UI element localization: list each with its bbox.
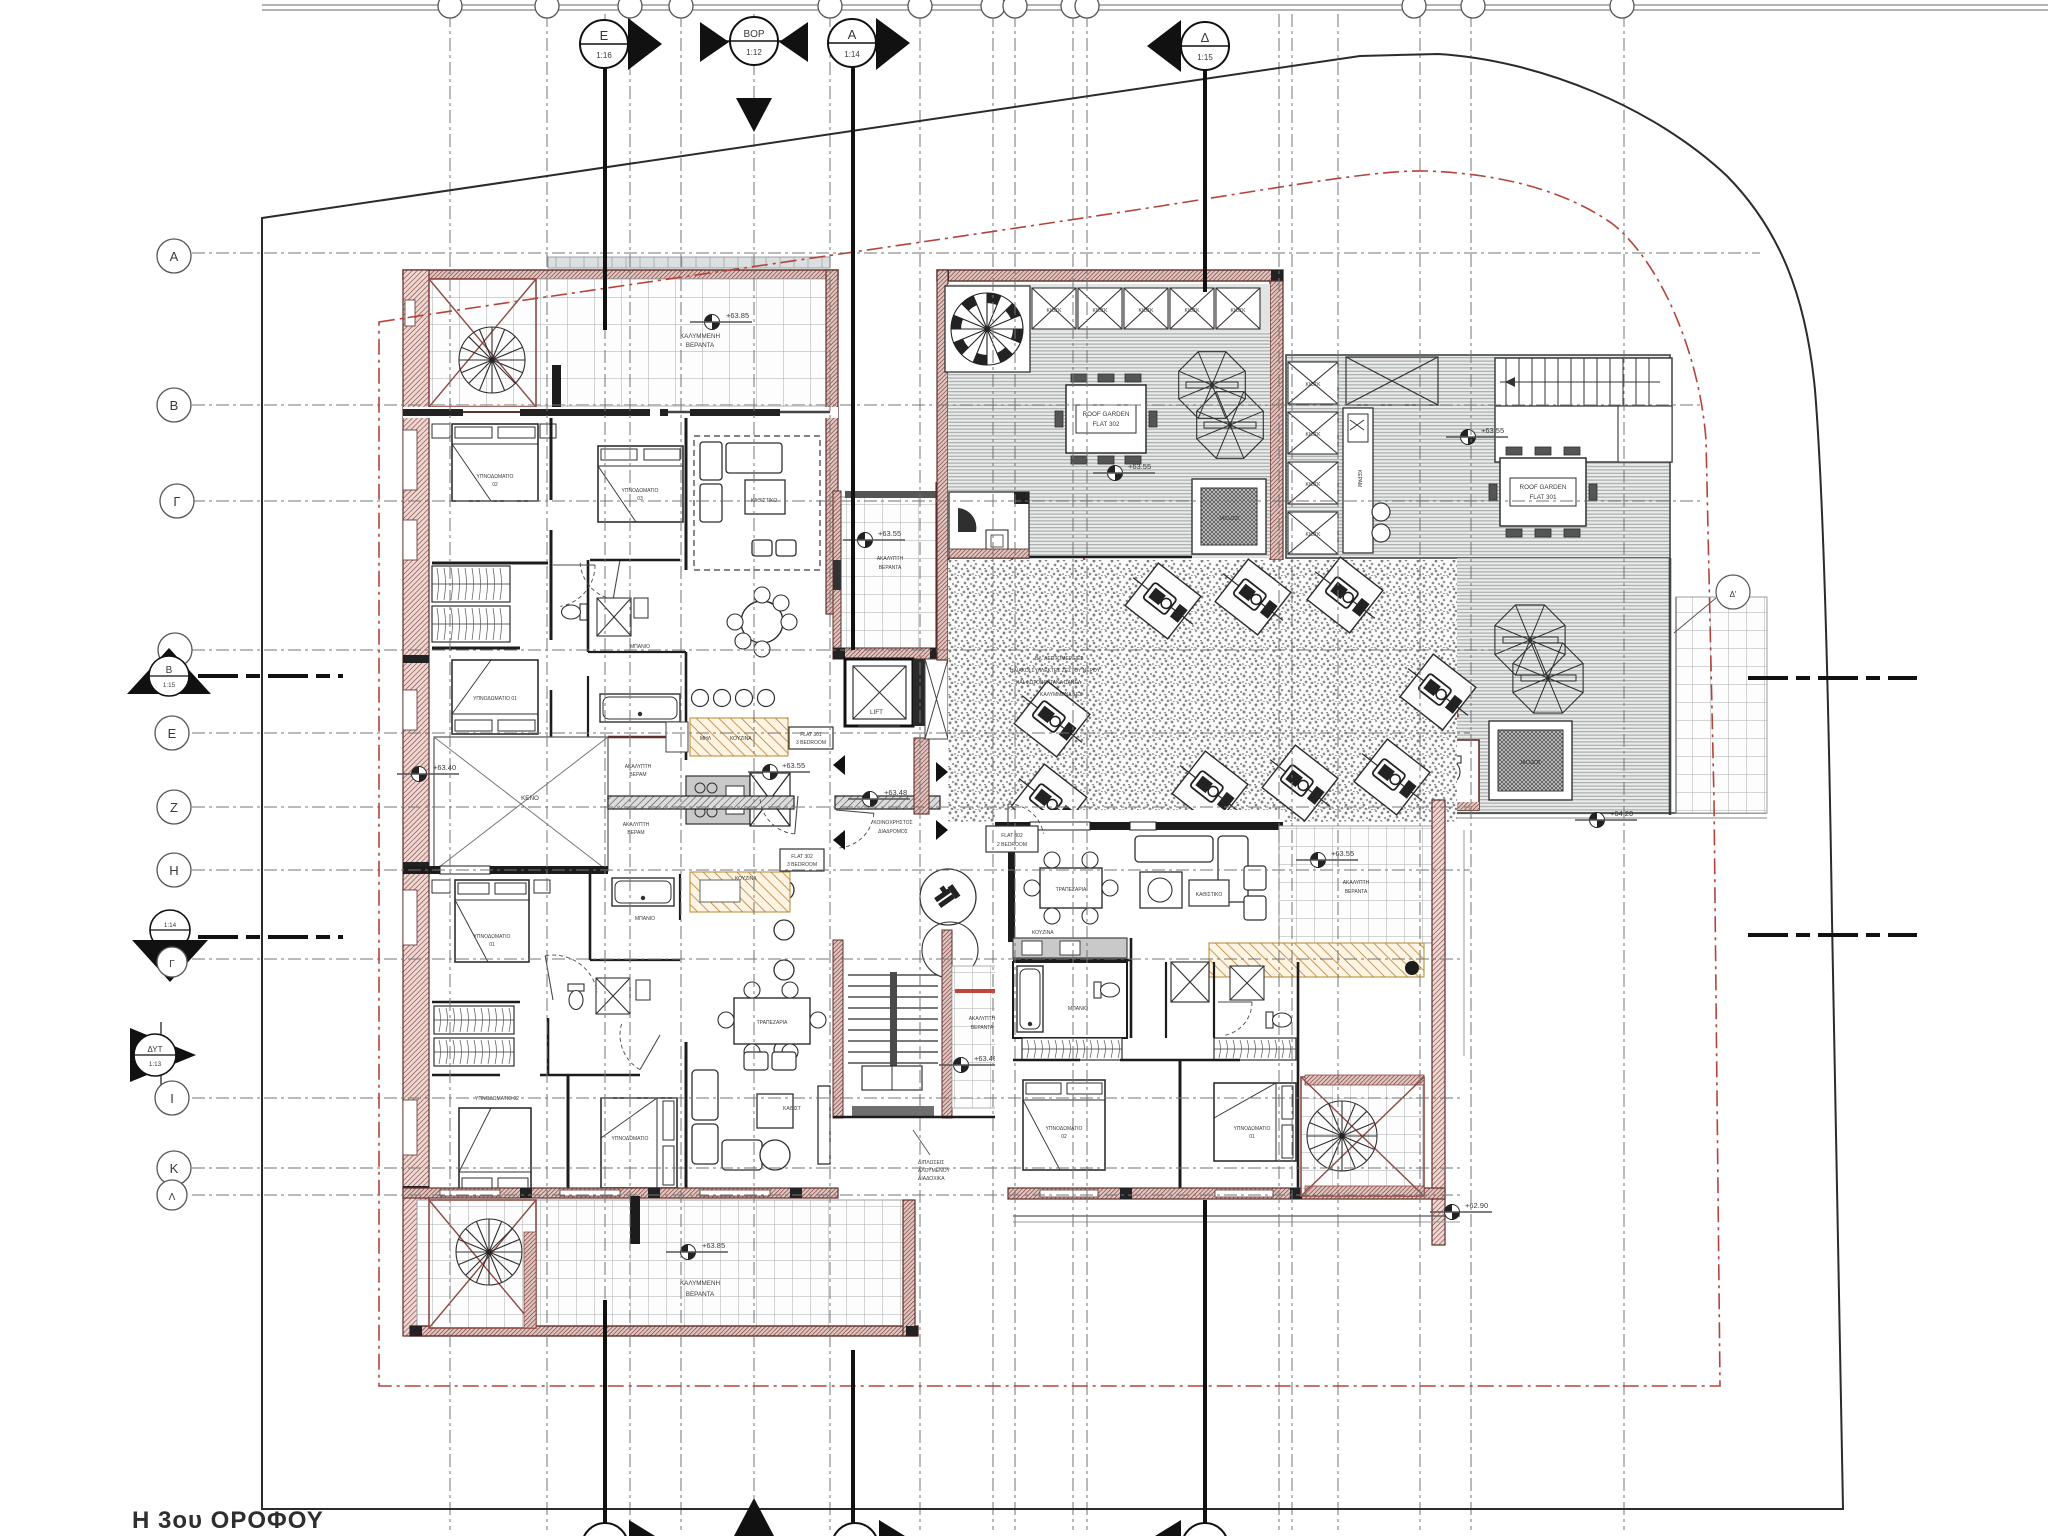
svg-text:E: E: [600, 28, 609, 43]
svg-text:ΔΙΑΔΟΧΙΚΑ: ΔΙΑΔΟΧΙΚΑ: [918, 1176, 945, 1182]
svg-text:ΒΕΡΑΝΤΑ: ΒΕΡΑΝΤΑ: [1345, 889, 1368, 895]
svg-text:ΤΡΑΠΕΖΑΡΙΑ: ΤΡΑΠΕΖΑΡΙΑ: [1056, 887, 1087, 893]
svg-text:+62.90: +62.90: [1465, 1201, 1488, 1210]
svg-text:+63.55: +63.55: [782, 761, 805, 770]
svg-text:1:15: 1:15: [1197, 53, 1213, 62]
svg-text:ΑΚΑΛΥΠΤΗ: ΑΚΑΛΥΠΤΗ: [877, 556, 904, 562]
svg-text:FLAT 302: FLAT 302: [1001, 833, 1023, 839]
svg-text:Λ: Λ: [169, 1192, 176, 1203]
svg-text:1:16: 1:16: [596, 51, 612, 60]
svg-text:LIFT: LIFT: [870, 709, 883, 716]
svg-text:+63.55: +63.55: [878, 529, 901, 538]
svg-text:ΜΠΑΝΙΟ: ΜΠΑΝΙΟ: [1068, 1006, 1088, 1012]
svg-text:ΥΠΝΟΔΩΜΑΤΙΟ: ΥΠΝΟΔΩΜΑΤΙΟ: [1234, 1126, 1271, 1132]
svg-text:+63.40: +63.40: [433, 763, 456, 772]
svg-text:BOP: BOP: [743, 29, 764, 40]
svg-text:ΥΠΝΟΔΩΜΑΤΙΟ: ΥΠΝΟΔΩΜΑΤΙΟ: [622, 488, 659, 494]
svg-text:ΚΑΙ ΦΩΤΟΒΟΛΤΑΚΑ ΠΑΝΕΛ: ΚΑΙ ΦΩΤΟΒΟΛΤΑΚΑ ΠΑΝΕΛ: [1016, 680, 1082, 686]
svg-text:ΑΚΑΛΥΠΤΗ: ΑΚΑΛΥΠΤΗ: [1343, 880, 1370, 886]
svg-text:ΚΙΟΣΚ: ΚΙΟΣΚ: [1305, 382, 1321, 388]
svg-text:+63.55: +63.55: [1128, 462, 1151, 471]
svg-text:ΒΕΡΑΝΤΑ: ΒΕΡΑΝΤΑ: [686, 1291, 715, 1298]
svg-text:A: A: [848, 27, 857, 42]
svg-text:+63.85: +63.85: [702, 1241, 725, 1250]
svg-text:ΥΠΝΟΔΩΜΑΤΙΟ: ΥΠΝΟΔΩΜΑΤΙΟ: [477, 474, 514, 480]
svg-text:ΔΥΤ: ΔΥΤ: [148, 1045, 163, 1054]
svg-text:+63.48: +63.48: [884, 788, 907, 797]
svg-text:01: 01: [1249, 1134, 1255, 1140]
svg-text:ΒΛ. ΛΕΠΤΟΜΕΡΕΙΕΣ: ΒΛ. ΛΕΠΤΟΜΕΡΕΙΕΣ: [1035, 656, 1083, 662]
svg-text:ΚΙΟΣΚ: ΚΙΟΣΚ: [1138, 308, 1154, 314]
svg-text:ΚΙΟΣΚ: ΚΙΟΣΚ: [1305, 482, 1321, 488]
svg-text:ΚΟΥΖΙΝΑ: ΚΟΥΖΙΝΑ: [1032, 930, 1054, 936]
svg-text:3 BEDROOM: 3 BEDROOM: [787, 862, 817, 868]
svg-text:1:15: 1:15: [163, 682, 176, 689]
svg-text:E: E: [168, 726, 177, 741]
svg-text:Γ: Γ: [169, 959, 175, 970]
svg-text:K: K: [170, 1161, 179, 1176]
svg-text:ΚΙΟΣΚ: ΚΙΟΣΚ: [1305, 432, 1321, 438]
svg-text:ΥΠΝΟΔΩΜΑΤΙΟ 02: ΥΠΝΟΔΩΜΑΤΙΟ 02: [475, 1096, 519, 1102]
svg-text:ΑΚΑΛΥΠΤΗ: ΑΚΑΛΥΠΤΗ: [969, 1016, 996, 1022]
svg-text:ΚΕΡΑΜ: ΚΕΡΑΜ: [1356, 470, 1362, 487]
svg-text:ΚΕΝΟ: ΚΕΝΟ: [521, 795, 539, 802]
svg-text:ΔΙΠΛΩΣΕΙΣ: ΔΙΠΛΩΣΕΙΣ: [918, 1160, 944, 1166]
svg-text:ΑΛΟΥΜΕΝΟΥ: ΑΛΟΥΜΕΝΟΥ: [918, 1168, 950, 1174]
svg-text:Γ: Γ: [173, 494, 180, 509]
svg-text:ROOF GARDEN: ROOF GARDEN: [1520, 484, 1567, 491]
svg-text:H: H: [169, 863, 178, 878]
svg-text:ΒΕΡΑΝΤΑ: ΒΕΡΑΝΤΑ: [879, 565, 902, 571]
svg-text:1:12: 1:12: [746, 48, 762, 57]
svg-text:ΚΙΟΣΚ: ΚΙΟΣΚ: [1305, 532, 1321, 538]
svg-text:ΒΕΡΑΝΤΑ: ΒΕΡΑΝΤΑ: [686, 342, 715, 349]
svg-text:Δ': Δ': [1730, 590, 1737, 599]
svg-text:ΚΙΟΣΚ: ΚΙΟΣΚ: [1092, 308, 1108, 314]
svg-text:ROOF GARDEN: ROOF GARDEN: [1083, 411, 1130, 418]
svg-text:ΚΙΟΣΚ: ΚΙΟΣΚ: [1230, 308, 1246, 314]
svg-text:ΔΙΑΔΡΟΜΟΣ: ΔΙΑΔΡΟΜΟΣ: [878, 829, 908, 835]
svg-text:1:14: 1:14: [164, 922, 177, 929]
svg-text:02: 02: [1061, 1134, 1067, 1140]
svg-text:ΥΠΝΟΔΩΜΑΤΙΟ 01: ΥΠΝΟΔΩΜΑΤΙΟ 01: [473, 696, 517, 702]
svg-text:+63.48: +63.48: [974, 1054, 997, 1063]
svg-text:ΒΕΡΑΜ: ΒΕΡΑΜ: [629, 772, 646, 778]
svg-text:ΚΙΟΣΚ: ΚΙΟΣΚ: [1184, 308, 1200, 314]
svg-text:1:14: 1:14: [844, 50, 860, 59]
svg-text:+63.55: +63.55: [1331, 849, 1354, 858]
svg-text:I: I: [170, 1091, 174, 1106]
svg-text:JACUZZI: JACUZZI: [1219, 516, 1240, 522]
svg-text:ΚΟΙΝΟΧΡΗΣΤΟΣ: ΚΟΙΝΟΧΡΗΣΤΟΣ: [873, 820, 912, 826]
svg-text:FLAT 302: FLAT 302: [791, 854, 813, 860]
svg-text:ΒΕΡΑΝΤΑ: ΒΕΡΑΝΤΑ: [971, 1025, 994, 1031]
svg-text:1:13: 1:13: [149, 1061, 162, 1068]
svg-text:2 BEDROOM: 2 BEDROOM: [997, 842, 1027, 848]
svg-text:ΚΑΛΥΜΜΕΝΗ: ΚΑΛΥΜΜΕΝΗ: [680, 1280, 721, 1287]
svg-text:3 BEDROOM: 3 BEDROOM: [796, 740, 826, 746]
svg-text:ΚΑΘΙΣΤΙΚΟ: ΚΑΘΙΣΤΙΚΟ: [1196, 892, 1223, 898]
svg-text:01: 01: [489, 942, 495, 948]
svg-text:ΚΑΛΥΜΜΕΝΑ ΔΕΣ: ΚΑΛΥΜΜΕΝΑ ΔΕΣ: [1040, 692, 1082, 698]
svg-text:+63.85: +63.85: [726, 311, 749, 320]
svg-text:02: 02: [492, 482, 498, 488]
svg-text:ΥΠΝΟΔΩΜΑΤΙΟ: ΥΠΝΟΔΩΜΑΤΙΟ: [474, 934, 511, 940]
svg-text:JACUZZI: JACUZZI: [1520, 760, 1541, 766]
svg-text:B: B: [166, 665, 173, 676]
svg-text:ΚΙΟΣΚ: ΚΙΟΣΚ: [1046, 308, 1062, 314]
svg-text:ΥΠΝΟΔΩΜΑΤΙΟ: ΥΠΝΟΔΩΜΑΤΙΟ: [1046, 1126, 1083, 1132]
svg-text:ΜΗΛ: ΜΗΛ: [700, 736, 712, 742]
svg-text:ΜΠΑΝΙΟ: ΜΠΑΝΙΟ: [630, 644, 650, 650]
svg-text:ΤΡΑΠΕΖΑΡΙΑ: ΤΡΑΠΕΖΑΡΙΑ: [757, 1020, 788, 1026]
svg-text:+63.55: +63.55: [1481, 426, 1504, 435]
svg-text:A: A: [170, 249, 179, 264]
svg-text:ΑΚΑΛΥΠΤΗ: ΑΚΑΛΥΠΤΗ: [623, 822, 650, 828]
svg-text:B: B: [170, 398, 179, 413]
svg-text:ΚΟΥΖΙΝΑ: ΚΟΥΖΙΝΑ: [730, 736, 752, 742]
svg-text:ΜΠΑΝΙΟ: ΜΠΑΝΙΟ: [635, 916, 655, 922]
svg-text:Η 3ου ΟΡΟΦΟΥ: Η 3ου ΟΡΟΦΟΥ: [132, 1507, 324, 1534]
svg-text:ΑΚΑΛΥΠΤΗ: ΑΚΑΛΥΠΤΗ: [625, 764, 652, 770]
svg-text:Z: Z: [170, 800, 178, 815]
svg-text:+64.20: +64.20: [1610, 809, 1633, 818]
svg-text:Δ: Δ: [1201, 30, 1210, 45]
svg-text:FLAT 302: FLAT 302: [1092, 421, 1120, 428]
svg-text:ΚΑΘΙΣΤ: ΚΑΘΙΣΤ: [783, 1106, 801, 1112]
svg-text:ΚΑΛΥΜΜΕΝΗ: ΚΑΛΥΜΜΕΝΗ: [680, 333, 721, 340]
svg-text:FLAT 301: FLAT 301: [1529, 494, 1557, 501]
